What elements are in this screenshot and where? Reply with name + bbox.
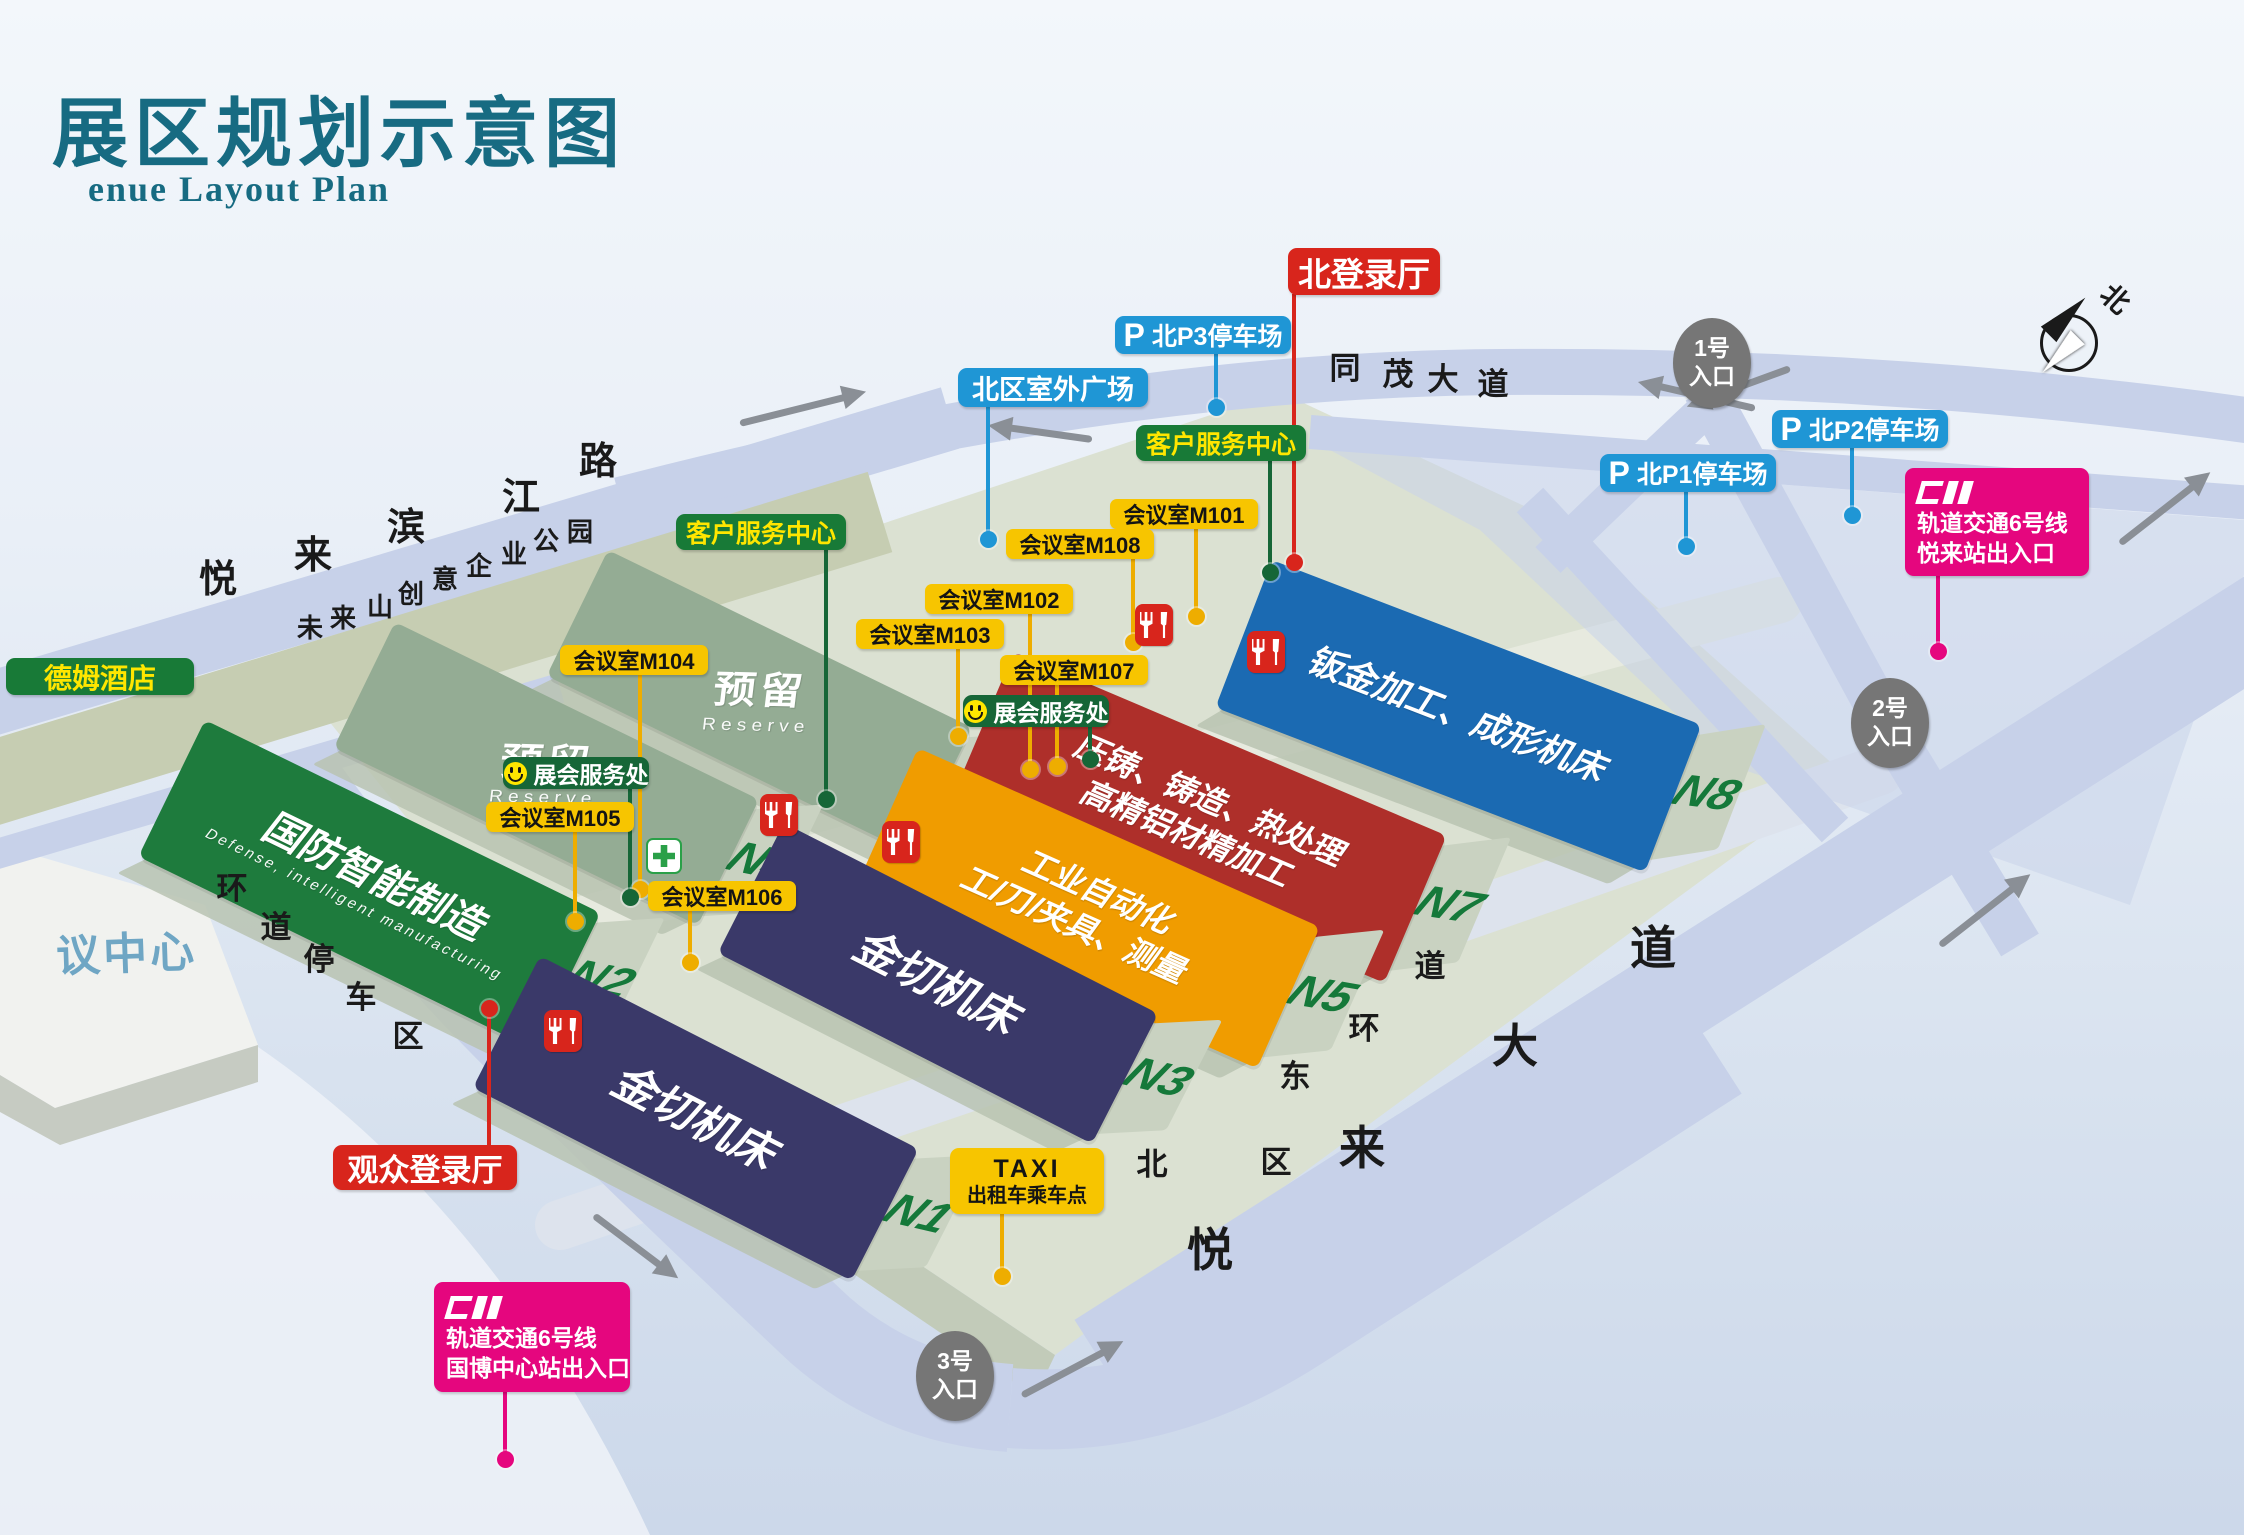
smiley-icon (504, 762, 527, 785)
expo-service-west: 展会服务处 (503, 757, 649, 789)
hall-N3-label: 金切机床 (842, 922, 1034, 1046)
entrance-2: 2号入口 (1851, 678, 1929, 768)
taxi-stand-leader (1000, 1213, 1004, 1273)
p3-parking-dot (1208, 399, 1225, 416)
fork-glyph (765, 802, 778, 828)
customer-service-east-dot (1262, 564, 1279, 581)
metro-line6-expo-center-station-dot (497, 1451, 514, 1468)
meeting-room-m105: 会议室M105 (486, 802, 634, 832)
restaurant-icon (760, 794, 798, 836)
meeting-room-m108-text: 会议室M108 (1019, 528, 1140, 560)
p1-parking-text: 北P1停车场 (1637, 455, 1768, 491)
metro-line6-yuelai-station-line1: 轨道交通6号线 (1917, 509, 2068, 539)
p3-parking: P北P3停车场 (1115, 316, 1291, 354)
metro-line6-expo-center-station-leader (503, 1391, 507, 1456)
compass-north-label: 北 (2092, 274, 2140, 322)
yuelai-avenue-char: 来 (1339, 1125, 1385, 1171)
yuelai-binjiang-road-char: 来 (294, 537, 332, 575)
expo-service-east-dot (1082, 751, 1099, 768)
expo-service-east-text: 展会服务处 (994, 694, 1109, 728)
visitor-login-hall: 观众登录厅 (333, 1145, 517, 1190)
fork-glyph (1252, 639, 1265, 665)
p1-parking-leader (1684, 491, 1688, 544)
meeting-room-m108: 会议室M108 (1006, 529, 1154, 559)
yuelai-avenue-char: 道 (1630, 925, 1676, 971)
page-title: 展区规划示意图 (52, 72, 626, 182)
metro-line6-yuelai-station-leader (1936, 575, 1940, 648)
meeting-room-m101-leader (1194, 528, 1198, 614)
meeting-room-m106-dot (682, 954, 699, 971)
convention-center-label: 议中心 (55, 916, 198, 985)
weilaishan-creative-park-char: 未 (297, 615, 323, 641)
customer-service-east-text: 客户服务中心 (1146, 425, 1296, 461)
knife-glyph (1160, 612, 1169, 638)
p1-parking: P北P1停车场 (1600, 454, 1776, 492)
weilaishan-creative-park-char: 公 (533, 528, 559, 554)
meeting-room-m107-text: 会议室M107 (1013, 654, 1134, 686)
metro-line6-expo-center-station: 轨道交通6号线国博中心站出入口 (434, 1282, 630, 1392)
expo-service-east: 展会服务处 (963, 695, 1109, 727)
rail-transit-logo-icon (444, 1293, 503, 1319)
north-login-hall-dot (1286, 554, 1303, 571)
yuelai-avenue-char: 大 (1492, 1023, 1538, 1069)
fork-glyph (1140, 612, 1153, 638)
north-outdoor-plaza: 北区室外广场 (958, 368, 1148, 407)
taxi-stand-dot (994, 1268, 1011, 1285)
entrance-1-line2: 入口 (1689, 363, 1735, 391)
dem-hotel: 德姆酒店 (6, 658, 194, 695)
meeting-room-m104: 会议室M104 (560, 645, 708, 675)
ring-road-parking-area-char: 道 (261, 912, 292, 943)
fork-glyph (549, 1018, 562, 1044)
tongmao-avenue-char: 道 (1478, 369, 1509, 400)
meeting-room-m103-dot (950, 728, 967, 745)
taxi-stand-line2: 出租车乘车点 (967, 1184, 1087, 1208)
restaurant-icon (1247, 631, 1285, 673)
meeting-room-m102: 会议室M102 (925, 584, 1073, 614)
medical-aid-icon (646, 838, 682, 874)
weilaishan-creative-park-char: 园 (567, 519, 593, 545)
customer-service-west-dot (818, 791, 835, 808)
knife-glyph (785, 802, 794, 828)
visitor-login-hall-text: 观众登录厅 (348, 1145, 503, 1190)
north-east-ring-road-char: 东 (1280, 1061, 1311, 1092)
customer-service-west-leader (824, 549, 828, 797)
weilaishan-creative-park-char: 来 (330, 605, 356, 631)
p1-parking-dot (1678, 538, 1695, 555)
meeting-room-m105-leader (573, 831, 577, 919)
expo-service-west-text: 展会服务处 (534, 756, 649, 790)
north-outdoor-plaza-leader (986, 406, 990, 536)
north-east-ring-road-char: 北 (1137, 1149, 1168, 1180)
north-east-ring-road-char: 区 (1261, 1147, 1292, 1178)
ring-road-parking-area-char: 区 (393, 1021, 424, 1052)
weilaishan-creative-park-char: 企 (466, 553, 492, 579)
weilaishan-creative-park-char: 山 (367, 594, 393, 620)
yuelai-binjiang-road-char: 路 (579, 443, 617, 481)
restaurant-icon (544, 1010, 582, 1052)
metro-line6-yuelai-station-dot (1930, 643, 1947, 660)
meeting-room-m103-text: 会议室M103 (869, 618, 990, 650)
restaurant-icon (882, 821, 920, 863)
meeting-room-m102-leader (1028, 613, 1032, 767)
meeting-room-m101-dot (1188, 608, 1205, 625)
knife-glyph (569, 1018, 578, 1044)
metro-line6-yuelai-station-line2: 悦来站出入口 (1917, 539, 2055, 569)
customer-service-west: 客户服务中心 (676, 514, 846, 550)
meeting-room-m102-text: 会议室M102 (938, 583, 1059, 615)
entrance-3-line2: 入口 (932, 1376, 978, 1404)
dem-hotel-text: 德姆酒店 (44, 657, 156, 697)
p3-parking-leader (1214, 353, 1218, 405)
visitor-login-hall-dot (481, 1000, 498, 1017)
weilaishan-creative-park-char: 意 (432, 566, 458, 592)
north-login-hall: 北登录厅 (1288, 248, 1440, 295)
meeting-room-m103-leader (956, 648, 960, 734)
yuelai-binjiang-road-char: 悦 (199, 561, 237, 599)
meeting-room-m101-text: 会议室M101 (1123, 498, 1244, 530)
north-login-hall-text: 北登录厅 (1298, 248, 1430, 296)
meeting-room-m104-text: 会议室M104 (573, 644, 694, 676)
hall-N6-label: 预留Reserve (701, 666, 817, 737)
yuelai-avenue-char: 悦 (1187, 1227, 1233, 1273)
entrance-2-line2: 入口 (1867, 723, 1913, 751)
p2-parking-dot (1844, 507, 1861, 524)
taxi-stand-line1: TAXI (993, 1154, 1060, 1184)
entrance-1: 1号入口 (1673, 318, 1751, 408)
weilaishan-creative-park-char: 创 (398, 581, 424, 607)
p2-parking-text: 北P2停车场 (1809, 411, 1940, 447)
p2-parking: P北P2停车场 (1772, 410, 1948, 448)
customer-service-east: 客户服务中心 (1136, 425, 1306, 461)
meeting-room-m101: 会议室M101 (1110, 499, 1258, 529)
metro-line6-expo-center-station-line1: 轨道交通6号线 (446, 1324, 597, 1354)
meeting-room-m106: 会议室M106 (648, 881, 796, 911)
tongmao-avenue-char: 茂 (1383, 359, 1414, 390)
meeting-room-m105-dot (567, 913, 584, 930)
tongmao-avenue-char: 同 (1330, 353, 1361, 384)
hall-N6-label-en: Reserve (701, 713, 811, 737)
hall-N1-label: 金切机床 (600, 1057, 792, 1181)
fork-glyph (887, 829, 900, 855)
entrance-1-line1: 1号 (1694, 335, 1730, 363)
entrance-3: 3号入口 (916, 1331, 994, 1421)
north-outdoor-plaza-dot (980, 531, 997, 548)
visitor-login-hall-leader (487, 1008, 491, 1145)
ring-road-parking-area-char: 停 (304, 944, 335, 975)
rail-transit-logo-icon (1915, 478, 1974, 504)
yuelai-binjiang-road-char: 滨 (387, 509, 425, 547)
meeting-room-m106-text: 会议室M106 (661, 880, 782, 912)
meeting-room-m107: 会议室M107 (1000, 655, 1148, 685)
taxi-stand: TAXI出租车乘车点 (950, 1148, 1104, 1214)
meeting-room-m103: 会议室M103 (856, 619, 1004, 649)
restaurant-icon (1135, 604, 1173, 646)
smiley-icon (964, 700, 987, 723)
medical-cross-glyph (653, 845, 675, 867)
p3-parking-text: 北P3停车场 (1152, 317, 1283, 353)
compass-icon: 北 (2030, 282, 2140, 392)
north-outdoor-plaza-text: 北区室外广场 (972, 368, 1134, 407)
expo-service-west-dot (622, 889, 639, 906)
parking-icon: P (1124, 319, 1145, 351)
north-east-ring-road-char: 道 (1415, 951, 1446, 982)
parking-icon: P (1781, 413, 1802, 445)
customer-service-west-text: 客户服务中心 (686, 514, 836, 550)
venue-map: 展区规划示意图 enue Layout Plan 议中心 北 N6预留Reser… (0, 0, 2244, 1535)
metro-line6-expo-center-station-line2: 国博中心站出入口 (446, 1354, 630, 1384)
customer-service-east-leader (1268, 460, 1272, 570)
meeting-room-m107-dot (1049, 758, 1066, 775)
parking-icon: P (1609, 457, 1630, 489)
yuelai-binjiang-road-char: 江 (502, 479, 540, 517)
weilaishan-creative-park-char: 业 (501, 541, 527, 567)
knife-glyph (1272, 639, 1281, 665)
tongmao-avenue-char: 大 (1428, 364, 1459, 395)
meeting-room-m105-text: 会议室M105 (499, 801, 620, 833)
p2-parking-leader (1850, 447, 1854, 513)
meeting-room-m106-leader (688, 910, 692, 960)
north-east-ring-road-char: 环 (1349, 1013, 1380, 1044)
page-subtitle: enue Layout Plan (88, 168, 390, 210)
meeting-room-m102-dot (1022, 761, 1039, 778)
entrance-2-line1: 2号 (1872, 695, 1908, 723)
ring-road-parking-area-char: 车 (346, 982, 377, 1013)
knife-glyph (907, 829, 916, 855)
ring-road-parking-area-char: 环 (217, 873, 248, 904)
metro-line6-yuelai-station: 轨道交通6号线悦来站出入口 (1905, 468, 2089, 576)
entrance-3-line1: 3号 (937, 1348, 973, 1376)
